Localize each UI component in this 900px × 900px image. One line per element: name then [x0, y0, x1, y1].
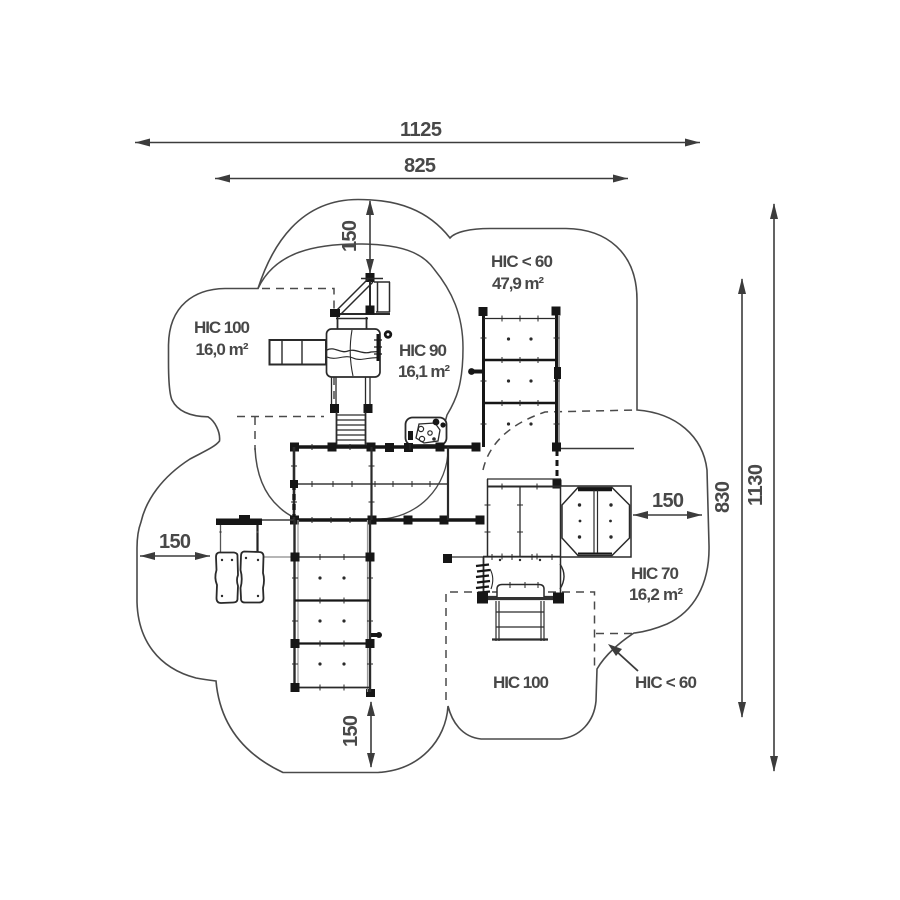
- svg-text:16,0 m²: 16,0 m²: [196, 340, 249, 359]
- svg-text:830: 830: [712, 481, 734, 513]
- svg-text:150: 150: [159, 531, 191, 553]
- svg-text:150: 150: [339, 220, 361, 252]
- svg-text:16,1 m²: 16,1 m²: [398, 362, 450, 381]
- svg-text:16,2 m²: 16,2 m²: [629, 585, 683, 604]
- svg-text:47,9 m²: 47,9 m²: [492, 274, 544, 293]
- svg-text:HIC < 60: HIC < 60: [491, 252, 553, 271]
- svg-text:HIC 100: HIC 100: [194, 318, 250, 337]
- svg-text:HIC 90: HIC 90: [399, 341, 447, 360]
- svg-text:HIC 70: HIC 70: [631, 564, 679, 583]
- svg-text:150: 150: [340, 715, 362, 747]
- svg-text:1125: 1125: [400, 119, 442, 141]
- svg-text:150: 150: [652, 490, 684, 512]
- svg-text:HIC 100: HIC 100: [493, 673, 549, 692]
- svg-text:HIC < 60: HIC < 60: [635, 673, 697, 692]
- svg-text:1130: 1130: [745, 464, 767, 506]
- svg-text:825: 825: [404, 155, 436, 177]
